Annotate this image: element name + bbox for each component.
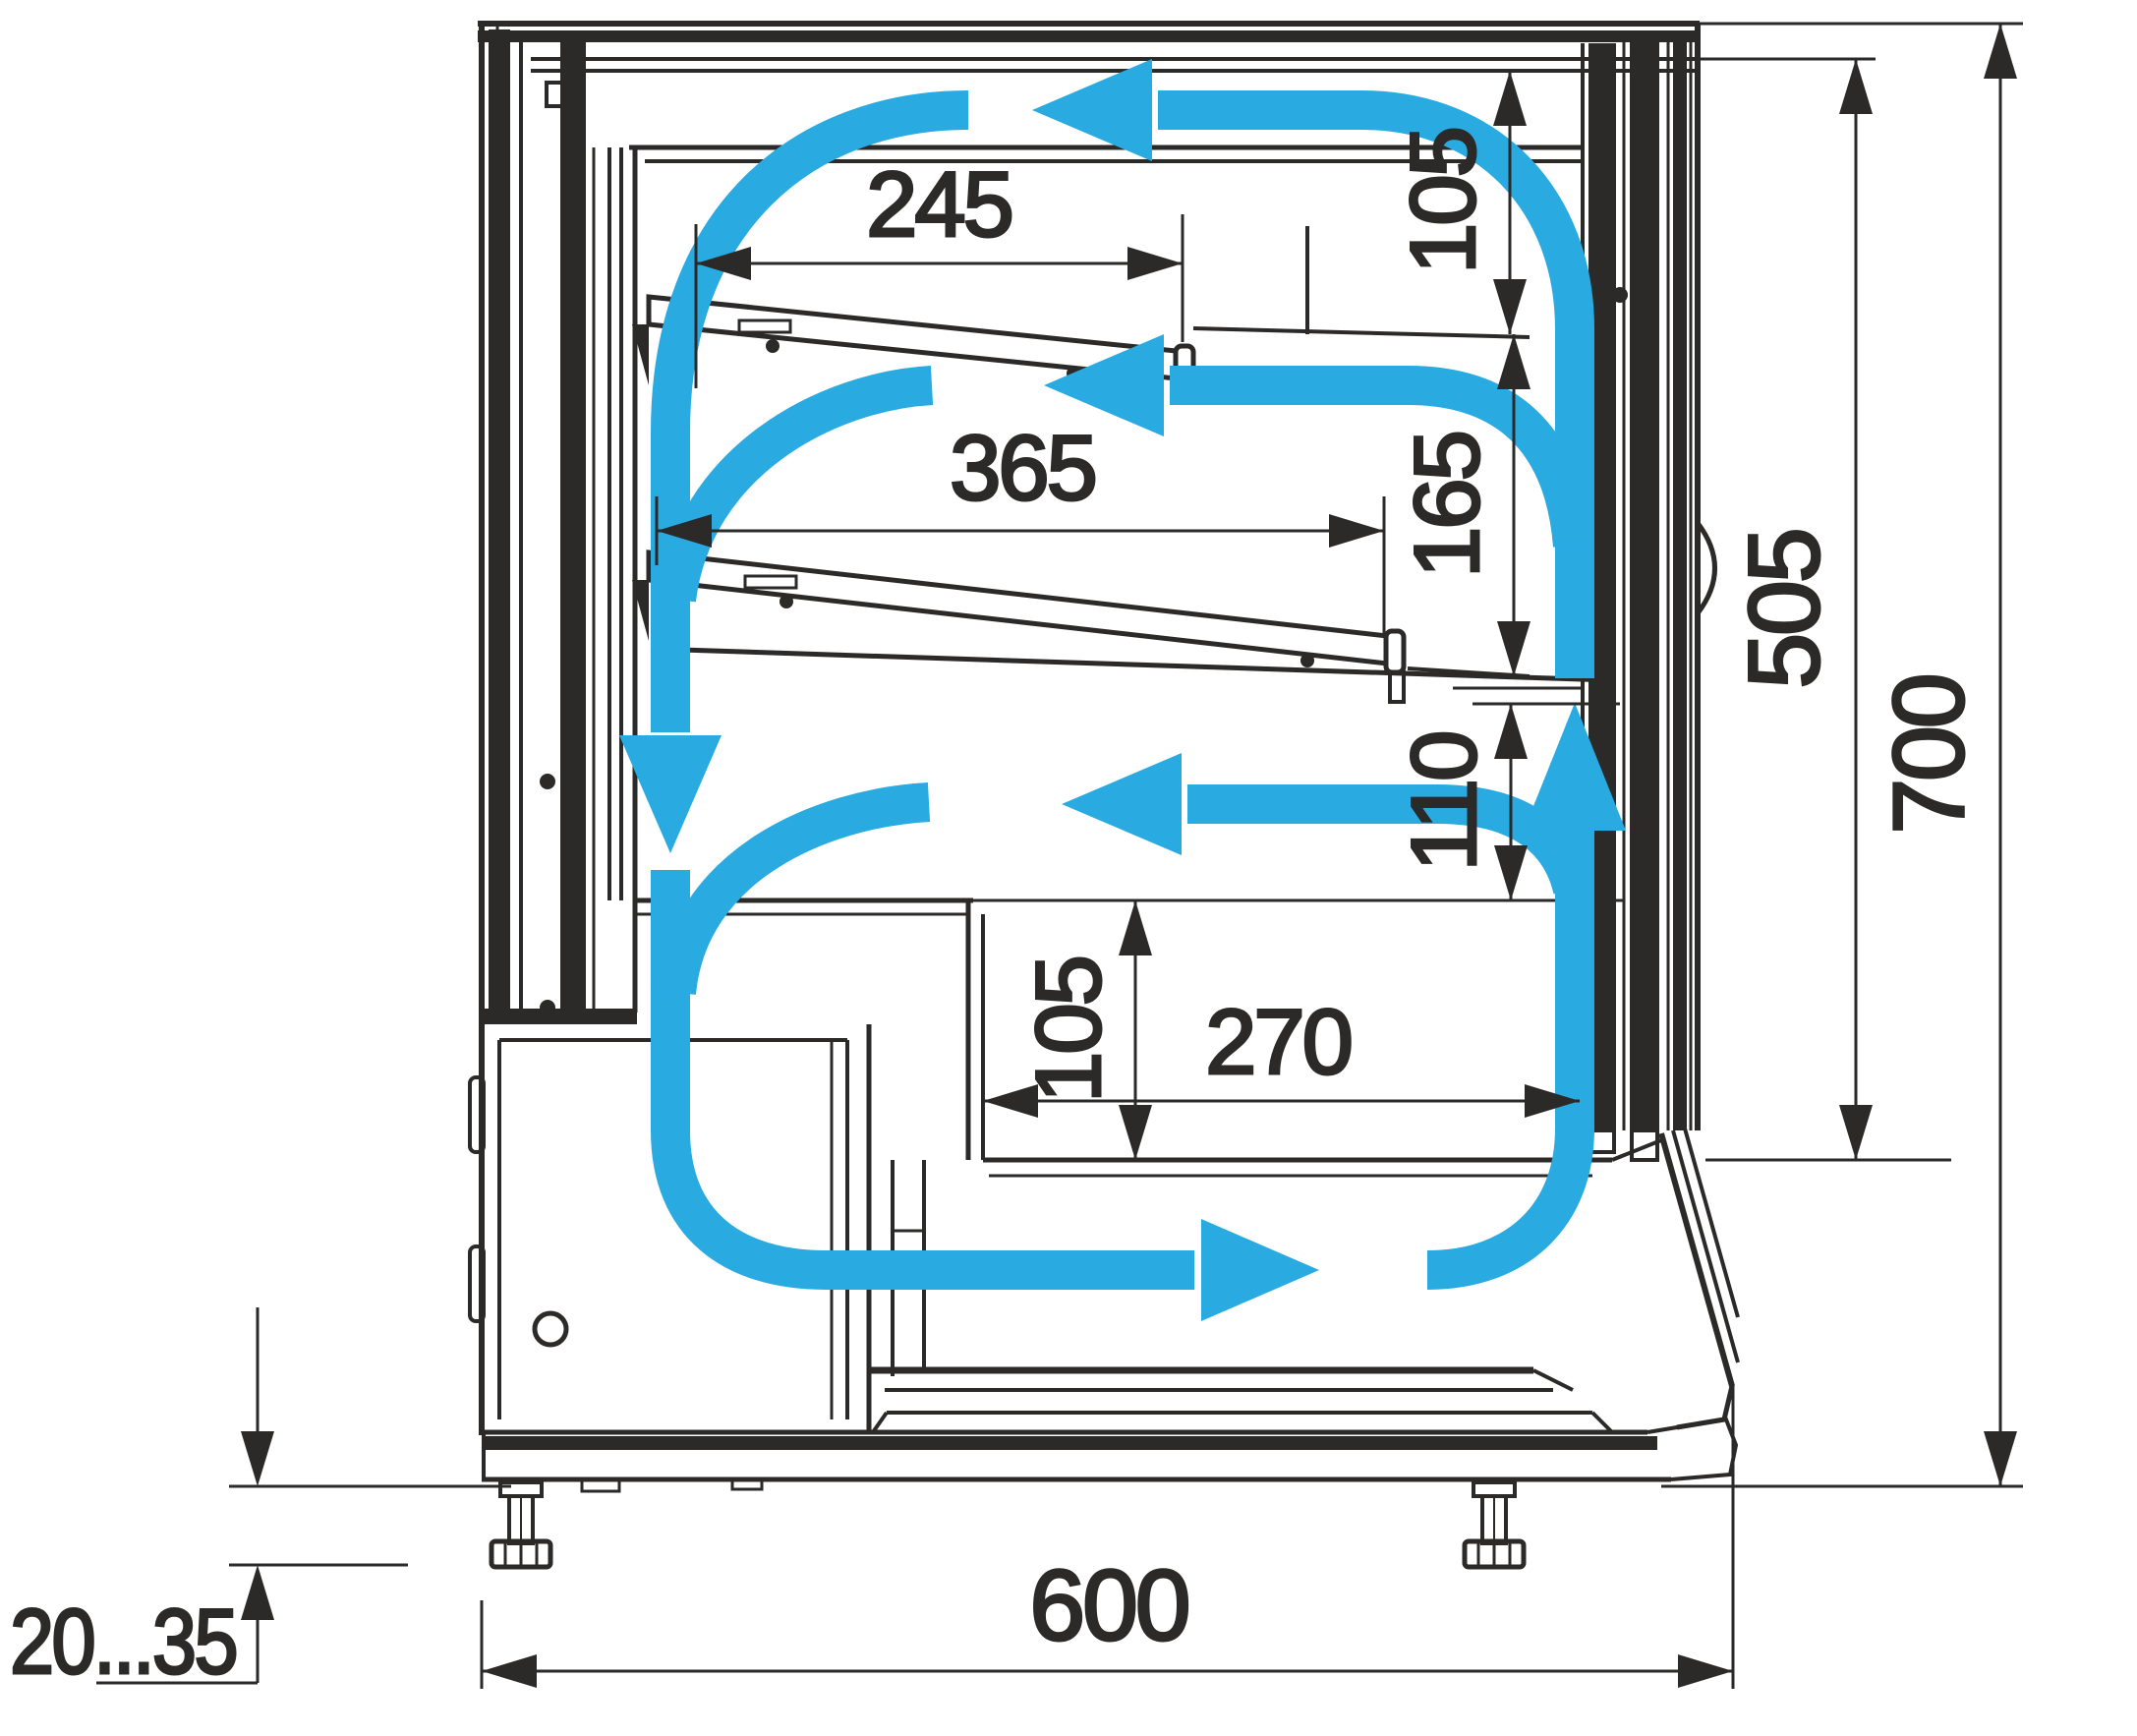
dim-label-overall-height: 700 — [1873, 675, 1985, 834]
dim-label-overall-depth: 600 — [1029, 1549, 1187, 1661]
screw-dot-icon — [1612, 287, 1628, 303]
base — [482, 1370, 1736, 1491]
dim-label-interior-height: 505 — [1728, 530, 1840, 688]
airflow-arrowhead-right-icon — [1201, 1219, 1319, 1321]
dim-20-35: 20...35 — [10, 1307, 511, 1693]
dim-505: 505 — [1705, 59, 1951, 1160]
airflow-merge-low — [676, 802, 929, 993]
vent-hole — [535, 1313, 566, 1345]
dim-label-well-width: 270 — [1205, 990, 1351, 1093]
dim-105-bottom: 105 — [1016, 900, 1152, 1160]
rear-wall — [482, 24, 635, 1435]
screw-dot-icon — [540, 774, 555, 789]
airflow-arrowhead-left-low-icon — [1062, 753, 1182, 855]
airflow-riser — [1427, 828, 1575, 1270]
technical-drawing-page: 245 105 365 165 — [0, 0, 2137, 1736]
dim-label-top-shelf-depth: 245 — [866, 152, 1011, 256]
front-wall — [1583, 24, 1715, 1160]
dim-label-well-step: 105 — [1016, 957, 1120, 1103]
dim-label-middle-shelf-depth: 365 — [950, 416, 1095, 519]
angled-front-panel — [1647, 1128, 1738, 1432]
display-case-drawing: 245 105 365 165 — [0, 0, 2137, 1736]
dim-700: 700 — [1661, 24, 2023, 1486]
dim-label-middle-gap: 165 — [1395, 433, 1498, 578]
dim-label-foot-adjust: 20...35 — [10, 1590, 236, 1693]
dim-label-lower-gap: 110 — [1392, 733, 1495, 872]
adjustable-foot-left — [491, 1482, 550, 1567]
dim-label-top-gap: 105 — [1391, 129, 1494, 274]
adjustable-foot-right — [1465, 1482, 1524, 1567]
